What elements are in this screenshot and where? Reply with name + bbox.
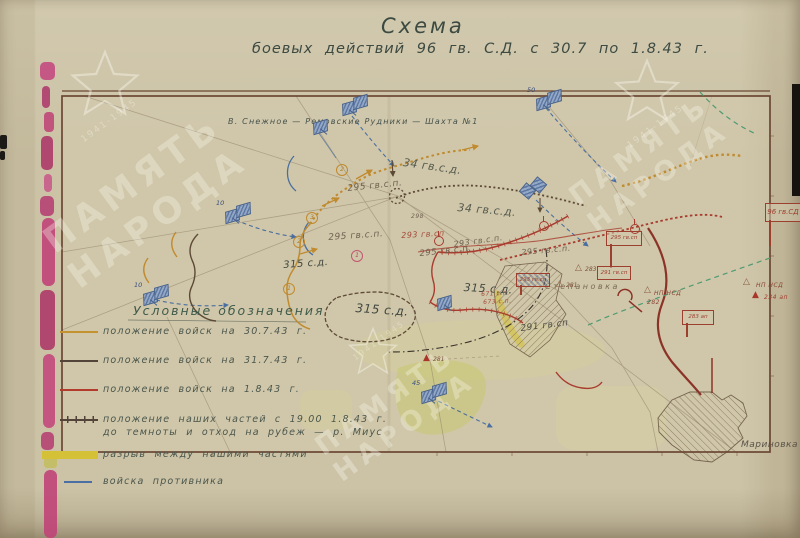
legend-sample xyxy=(60,389,98,391)
red-flag-mark xyxy=(434,236,444,246)
map-label: НП НСД xyxy=(756,282,783,289)
map-label: Мариновка xyxy=(741,440,798,450)
enemy-flag xyxy=(313,117,343,139)
enemy-flag-icon xyxy=(353,94,368,110)
enemy-flag-number: 10 xyxy=(134,281,142,289)
circled-number: 3 xyxy=(306,212,318,224)
map-label: 673 с.п. xyxy=(483,298,512,306)
enemy-flag: 10 xyxy=(225,206,255,228)
unit-box-pole xyxy=(769,220,771,246)
enemy-flag-number: 45 xyxy=(412,379,420,387)
height-triangle: △ xyxy=(644,286,651,295)
legend-label: положение войск на 31.7.43 г. xyxy=(103,355,307,366)
enemy-flag-number: 10 xyxy=(216,199,224,207)
legend-sample xyxy=(60,331,98,333)
legend-label: положение наших частей с 19.00 1.8.43 г. xyxy=(103,414,387,425)
map-label: 298 xyxy=(411,213,424,220)
enemy-flag xyxy=(521,181,551,203)
legend-label: до темноты и отход на рубеж — р. Миус xyxy=(103,427,383,438)
legend-sample xyxy=(42,451,98,459)
enemy-flag: 50 xyxy=(536,93,566,115)
red-flag-mark xyxy=(630,224,640,234)
legend-label: войска противника xyxy=(103,476,224,487)
binding-strip xyxy=(40,62,57,538)
unit-box-pole xyxy=(686,323,688,337)
circled-number: 2 xyxy=(293,236,305,248)
circled-number: 1 xyxy=(351,250,363,262)
enemy-flag: 45 xyxy=(421,386,451,408)
legend-label: положение войск на 1.8.43 г. xyxy=(103,384,300,395)
enemy-flag-icon xyxy=(432,382,447,398)
enemy-flag-number: 50 xyxy=(527,86,535,94)
map-subtitle: боевых действий 96 гв. С.Д. с 30.7 по 1.… xyxy=(252,41,709,57)
legend-label: положение войск на 30.7.43 г. xyxy=(103,326,307,337)
map-title: Схема xyxy=(381,14,465,38)
height-triangle: △ xyxy=(743,278,750,287)
enemy-flag xyxy=(342,98,372,120)
height-number: 281 xyxy=(566,282,577,289)
legend-label: разрыв между нашими частями xyxy=(103,449,308,460)
enemy-flag: 10 xyxy=(143,288,173,310)
unit-box-pole xyxy=(610,244,612,268)
map-label: 282 xyxy=(647,299,660,306)
height-number: 281 xyxy=(433,356,444,363)
unit-box: 291 гв.сп xyxy=(597,266,631,280)
legend-sample xyxy=(60,416,98,423)
circled-number: 1 xyxy=(283,283,295,295)
height-number: 283 xyxy=(585,266,596,273)
enemy-flag xyxy=(437,293,467,315)
enemy-flag-icon xyxy=(154,284,169,300)
map-label: 671 с.п. xyxy=(481,290,510,298)
map-label: 234 ап xyxy=(764,294,788,301)
circled-number: 2 xyxy=(336,164,348,176)
red-flag-mark xyxy=(539,221,549,231)
height-triangle: △ xyxy=(575,264,582,273)
height-triangle: △ xyxy=(556,280,563,289)
height-triangle: ▲ xyxy=(752,291,759,300)
scanned-map-page: ПАМЯТЬНАРОДА ПАМЯТЬНАРОДА ПАМЯТЬНАРОДА 1… xyxy=(0,0,800,538)
map-label: НП НСД xyxy=(654,290,681,297)
legend-sample xyxy=(60,360,98,362)
height-triangle: ▲ xyxy=(423,354,430,363)
legend-sample xyxy=(64,481,92,483)
enemy-flag-icon xyxy=(236,202,251,218)
unit-box-pole xyxy=(520,285,522,295)
enemy-flag-icon xyxy=(547,89,562,105)
